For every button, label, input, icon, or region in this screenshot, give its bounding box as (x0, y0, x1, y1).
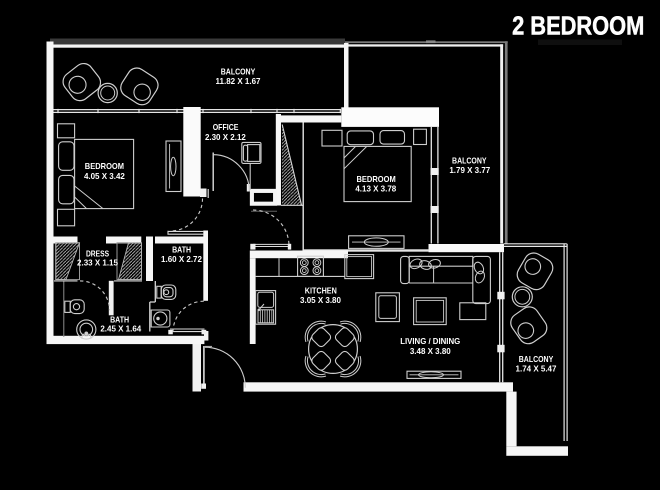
svg-text:DRESS: DRESS (86, 249, 109, 259)
svg-text:2.45 X 1.64: 2.45 X 1.64 (100, 325, 141, 334)
svg-text:1.79 X 3.77: 1.79 X 3.77 (449, 166, 490, 175)
svg-text:KITCHEN: KITCHEN (305, 286, 337, 295)
svg-text:LIVING / DINING: LIVING / DINING (400, 337, 460, 346)
svg-text:1.60 X 2.72: 1.60 X 2.72 (161, 255, 202, 264)
svg-text:BALCONY: BALCONY (452, 156, 487, 166)
svg-text:3.05 X 3.80: 3.05 X 3.80 (300, 296, 341, 305)
svg-text:2 BEDROOM: 2 BEDROOM (512, 12, 644, 41)
svg-text:2.30 X 2.12: 2.30 X 2.12 (205, 133, 246, 142)
svg-text:1.74 X 5.47: 1.74 X 5.47 (516, 365, 557, 374)
svg-text:BALCONY: BALCONY (221, 67, 256, 77)
svg-text:BEDROOM: BEDROOM (85, 162, 124, 171)
svg-text:BATH: BATH (110, 315, 129, 325)
svg-text:11.82 X 1.67: 11.82 X 1.67 (216, 77, 261, 86)
svg-text:4.05 X 3.42: 4.05 X 3.42 (84, 172, 125, 181)
svg-text:BATH: BATH (172, 245, 191, 255)
svg-text:OFFICE: OFFICE (213, 123, 239, 133)
svg-text:BALCONY: BALCONY (519, 354, 554, 364)
svg-text:BEDROOM: BEDROOM (356, 175, 395, 184)
svg-text:4.13 X 3.78: 4.13 X 3.78 (355, 185, 396, 194)
svg-text:2.33 X 1.15: 2.33 X 1.15 (77, 258, 118, 267)
svg-text:3.48 X 3.80: 3.48 X 3.80 (410, 347, 451, 356)
